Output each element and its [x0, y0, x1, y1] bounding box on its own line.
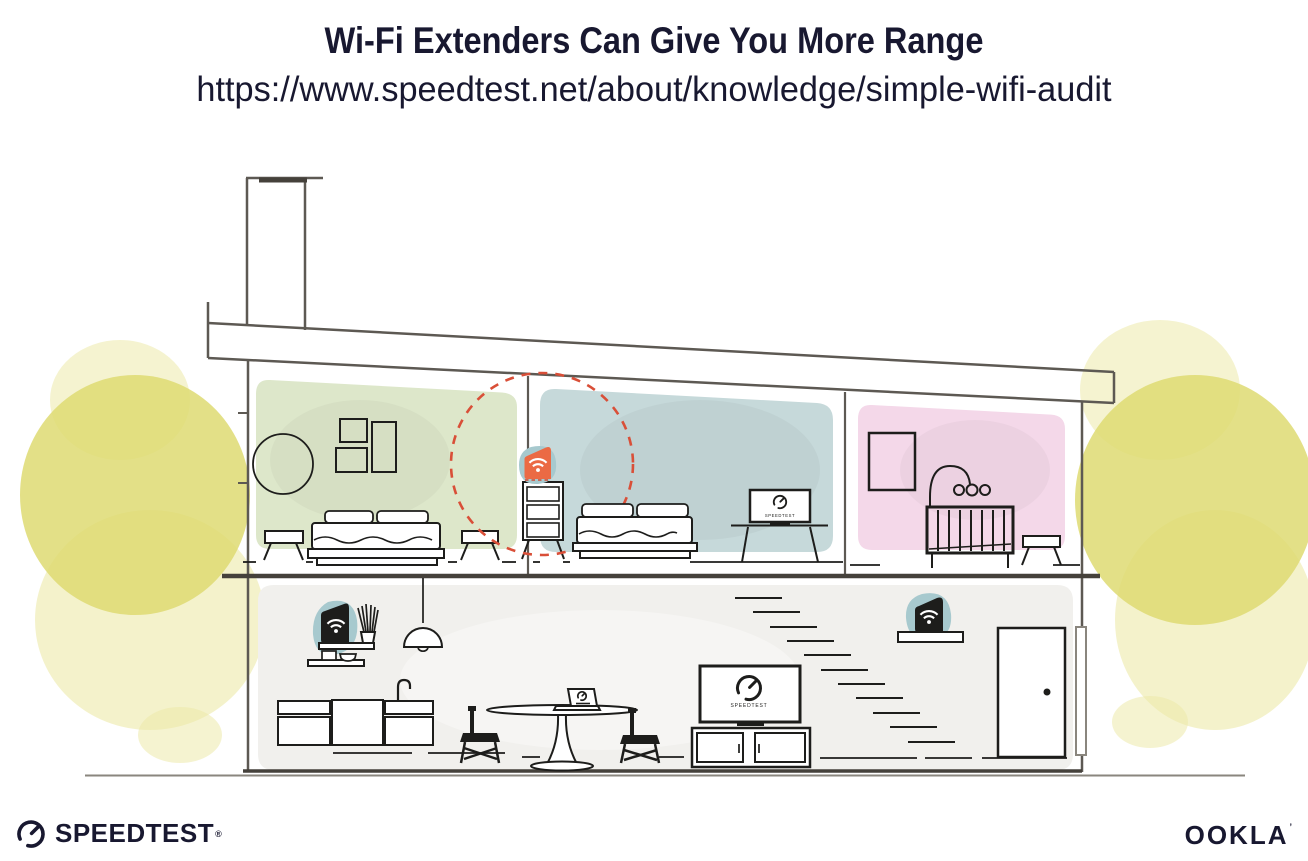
tv-label: SPEEDTEST — [731, 703, 768, 709]
pillow — [637, 504, 688, 517]
ookla-trademark-tick: ’ — [1289, 822, 1294, 832]
speedtest-gauge-icon — [16, 819, 46, 849]
stool — [1022, 536, 1061, 565]
house-illustration: SPEEDTEST — [0, 0, 1308, 861]
bowl — [340, 654, 356, 661]
mattress — [577, 517, 692, 543]
cup — [322, 651, 336, 660]
chimney — [246, 178, 323, 330]
speedtest-wordmark: SPEEDTEST — [55, 818, 214, 849]
hallway-shelf — [898, 632, 963, 642]
ookla-logo: OOKLA’ — [1185, 820, 1294, 851]
cabinet-drawer — [385, 701, 433, 714]
tv-label: SPEEDTEST — [765, 513, 795, 518]
registered-trademark: ® — [215, 829, 222, 839]
foliage-right — [1075, 320, 1308, 748]
foliage-left — [20, 340, 265, 763]
tv-living: SPEEDTEST — [700, 666, 800, 725]
cabinet — [385, 717, 433, 745]
pillow — [377, 511, 428, 523]
wifi-extender-bedroom — [519, 446, 556, 484]
front-door — [998, 628, 1065, 757]
tv-screen — [700, 666, 800, 722]
ookla-wordmark: OOKLA — [1185, 820, 1289, 850]
pillow — [325, 511, 373, 523]
shelf — [308, 660, 364, 666]
console-door — [755, 733, 805, 762]
pillow — [582, 504, 633, 517]
door-knob — [1044, 689, 1051, 696]
speedtest-logo: SPEEDTEST® — [16, 818, 222, 849]
console-door — [697, 733, 743, 762]
cabinet — [278, 717, 330, 745]
cabinet-drawer — [278, 701, 330, 714]
mattress — [312, 523, 440, 549]
laptop-base — [554, 706, 600, 710]
cabinet — [332, 700, 383, 745]
downpipe — [1076, 627, 1086, 755]
media-console — [692, 728, 810, 767]
